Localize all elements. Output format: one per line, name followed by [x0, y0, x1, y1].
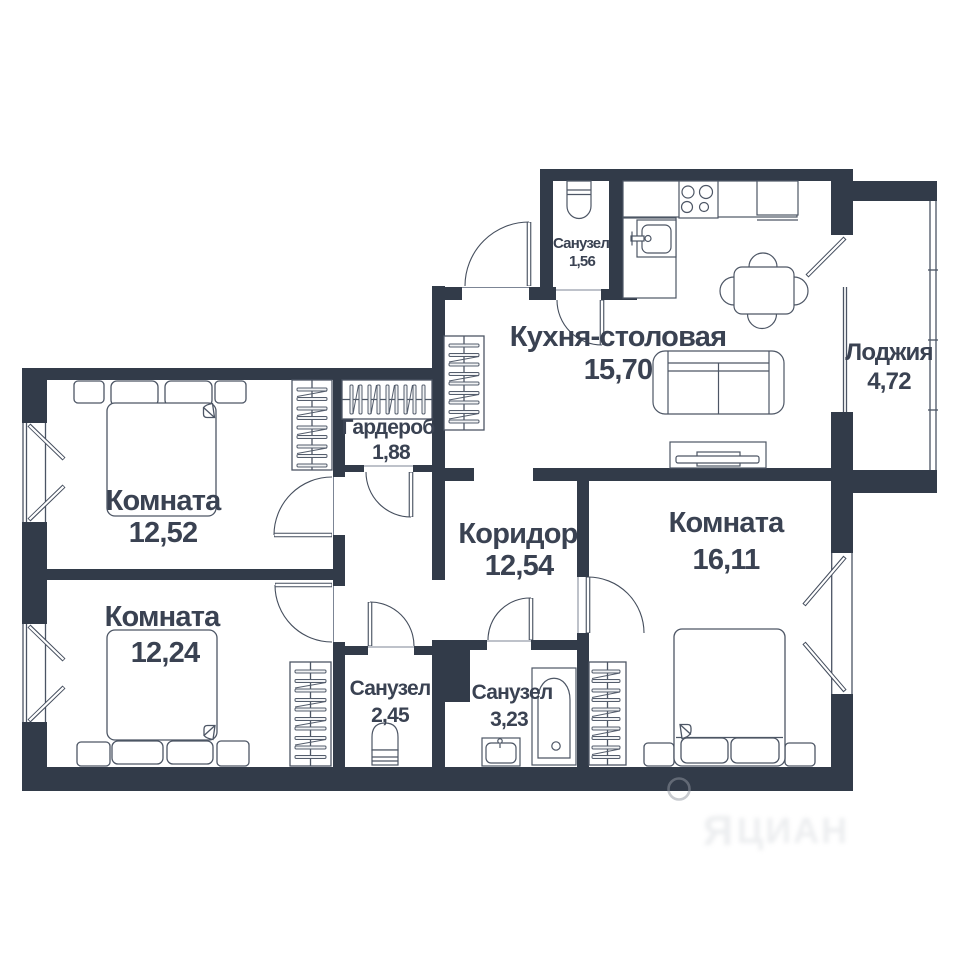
- svg-text:3,23: 3,23: [490, 708, 528, 731]
- svg-text:Комната: Комната: [669, 507, 786, 539]
- svg-text:Санузел: Санузел: [553, 235, 609, 252]
- svg-text:1,88: 1,88: [372, 441, 411, 464]
- svg-text:12,52: 12,52: [129, 517, 198, 549]
- svg-text:Гардероб: Гардероб: [342, 416, 436, 439]
- svg-text:Санузел: Санузел: [350, 677, 431, 700]
- svg-text:Я: Я: [703, 807, 733, 854]
- svg-text:Санузел: Санузел: [472, 681, 553, 704]
- svg-text:Комната: Комната: [105, 601, 222, 633]
- svg-text:15,70: 15,70: [584, 354, 653, 386]
- svg-text:1,56: 1,56: [569, 253, 595, 270]
- svg-text:Кухня-столовая: Кухня-столовая: [510, 321, 726, 353]
- svg-text:Комната: Комната: [106, 485, 223, 517]
- svg-text:4,72: 4,72: [867, 368, 911, 395]
- svg-text:12,24: 12,24: [131, 637, 200, 669]
- svg-text:Лоджия: Лоджия: [845, 339, 932, 366]
- svg-text:12,54: 12,54: [485, 550, 554, 582]
- svg-text:2,45: 2,45: [371, 704, 410, 727]
- svg-text:16,11: 16,11: [693, 544, 761, 576]
- svg-text:ЦИАН: ЦИАН: [737, 810, 849, 851]
- svg-text:Коридор: Коридор: [458, 518, 577, 550]
